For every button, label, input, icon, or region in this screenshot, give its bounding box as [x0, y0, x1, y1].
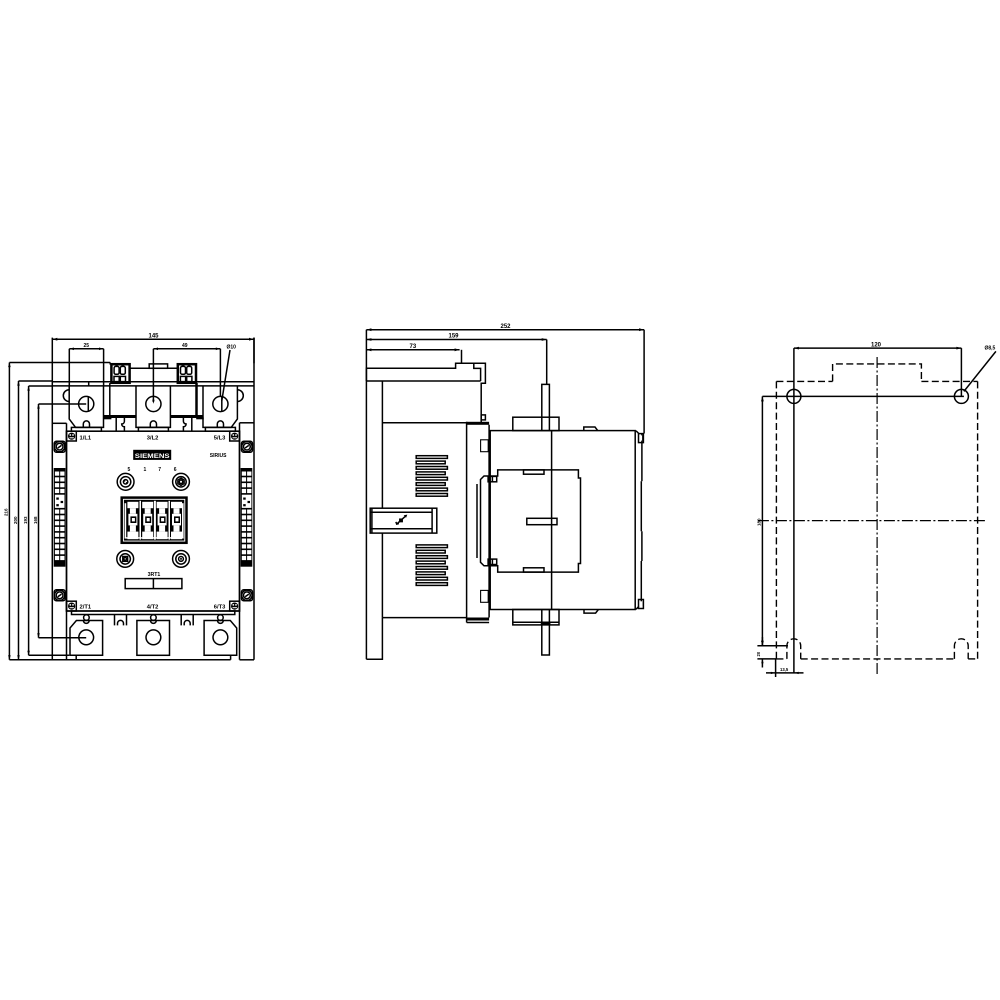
svg-text:200: 200 [13, 516, 18, 524]
svg-text:2/T1: 2/T1 [80, 604, 92, 610]
svg-text:3RT1: 3RT1 [148, 572, 161, 578]
svg-text:4/T2: 4/T2 [147, 604, 159, 610]
svg-text:145: 145 [149, 333, 160, 339]
svg-text:168: 168 [33, 516, 38, 524]
svg-text:159: 159 [449, 334, 460, 340]
svg-text:49: 49 [182, 343, 188, 349]
svg-text:120: 120 [871, 342, 882, 348]
svg-text:Ø10: Ø10 [227, 345, 237, 351]
svg-text:5: 5 [128, 467, 131, 473]
svg-text:193: 193 [23, 516, 28, 524]
svg-text:6/T3: 6/T3 [214, 604, 226, 610]
svg-text:20: 20 [756, 651, 761, 656]
svg-text:13,5: 13,5 [780, 667, 789, 672]
svg-text:3/L2: 3/L2 [147, 436, 159, 442]
svg-text:25: 25 [84, 343, 90, 349]
svg-text:73: 73 [410, 344, 417, 350]
svg-text:180: 180 [756, 518, 761, 526]
svg-text:1/L1: 1/L1 [80, 436, 92, 442]
svg-text:5/L3: 5/L3 [214, 436, 226, 442]
svg-text:Ø8,5: Ø8,5 [985, 346, 996, 352]
svg-text:7: 7 [158, 467, 161, 473]
svg-text:216: 216 [4, 508, 9, 516]
svg-text:SIRIUS: SIRIUS [210, 453, 227, 459]
svg-text:SIEMENS: SIEMENS [135, 453, 170, 460]
svg-text:1: 1 [144, 467, 147, 473]
svg-text:6: 6 [174, 467, 177, 473]
svg-text:252: 252 [501, 324, 512, 330]
